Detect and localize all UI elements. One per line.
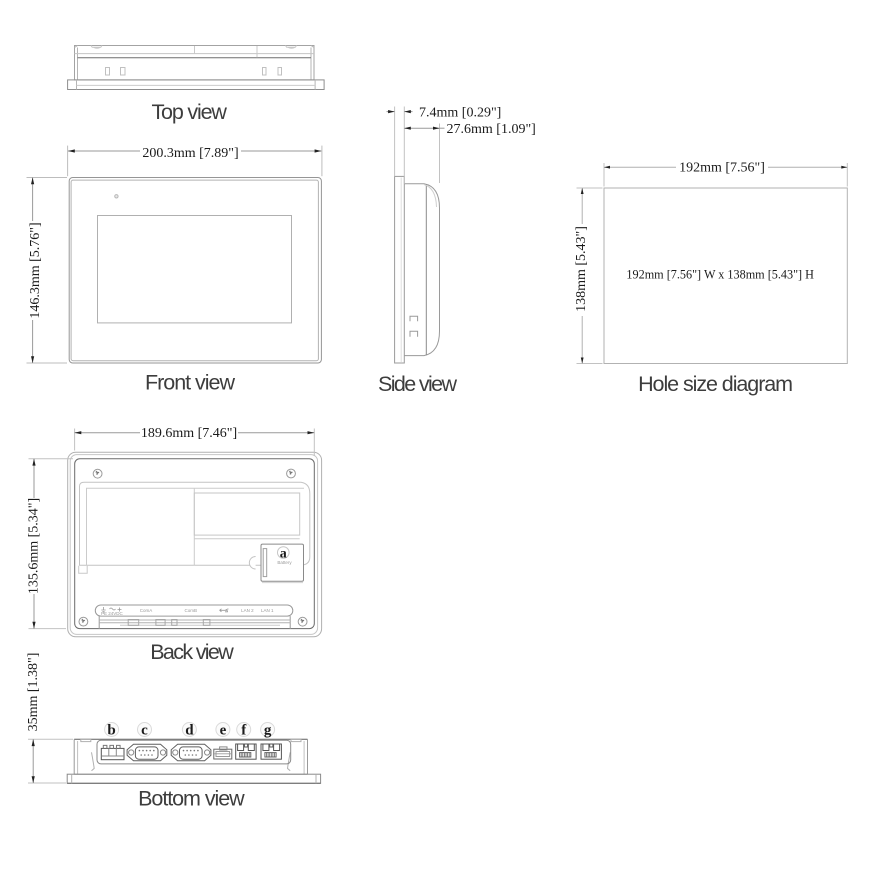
svg-text:c: c bbox=[141, 723, 148, 739]
svg-text:Battery: Battery bbox=[277, 560, 292, 565]
svg-text:Side view: Side view bbox=[378, 372, 457, 396]
svg-text:27.6mm [1.09"]: 27.6mm [1.09"] bbox=[447, 122, 536, 137]
svg-text:Bottom view: Bottom view bbox=[138, 786, 245, 810]
svg-text:7.4mm [0.29"]: 7.4mm [0.29"] bbox=[419, 105, 501, 120]
svg-text:138mm [5.43"]: 138mm [5.43"] bbox=[574, 226, 589, 312]
svg-text:ComB: ComB bbox=[185, 608, 198, 613]
svg-text:Hole size diagram: Hole size diagram bbox=[638, 372, 793, 396]
svg-text:a: a bbox=[280, 546, 287, 561]
svg-text:PE 24VDC: PE 24VDC bbox=[101, 611, 124, 616]
svg-text:135.6mm [5.34"]: 135.6mm [5.34"] bbox=[27, 498, 42, 594]
svg-text:192mm [7.56"]: 192mm [7.56"] bbox=[679, 161, 765, 176]
svg-text:LAN 1: LAN 1 bbox=[261, 608, 274, 613]
svg-text:ComA: ComA bbox=[140, 608, 153, 613]
svg-text:g: g bbox=[264, 723, 272, 739]
svg-text:192mm [7.56"] W x 138mm [5.43": 192mm [7.56"] W x 138mm [5.43"] H bbox=[626, 267, 814, 281]
svg-text:189.6mm [7.46"]: 189.6mm [7.46"] bbox=[141, 426, 237, 441]
svg-text:Back view: Back view bbox=[150, 640, 234, 664]
svg-text:e: e bbox=[220, 723, 227, 739]
svg-text:Top view: Top view bbox=[151, 100, 227, 124]
svg-text:b: b bbox=[107, 723, 115, 739]
svg-text:d: d bbox=[185, 723, 194, 739]
svg-text:200.3mm [7.89"]: 200.3mm [7.89"] bbox=[142, 146, 238, 161]
svg-text:146.3mm [5.76"]: 146.3mm [5.76"] bbox=[28, 222, 43, 318]
svg-text:Front view: Front view bbox=[145, 370, 235, 394]
svg-text:35mm [1.38"]: 35mm [1.38"] bbox=[26, 653, 41, 732]
svg-text:LAN 2: LAN 2 bbox=[241, 608, 254, 613]
